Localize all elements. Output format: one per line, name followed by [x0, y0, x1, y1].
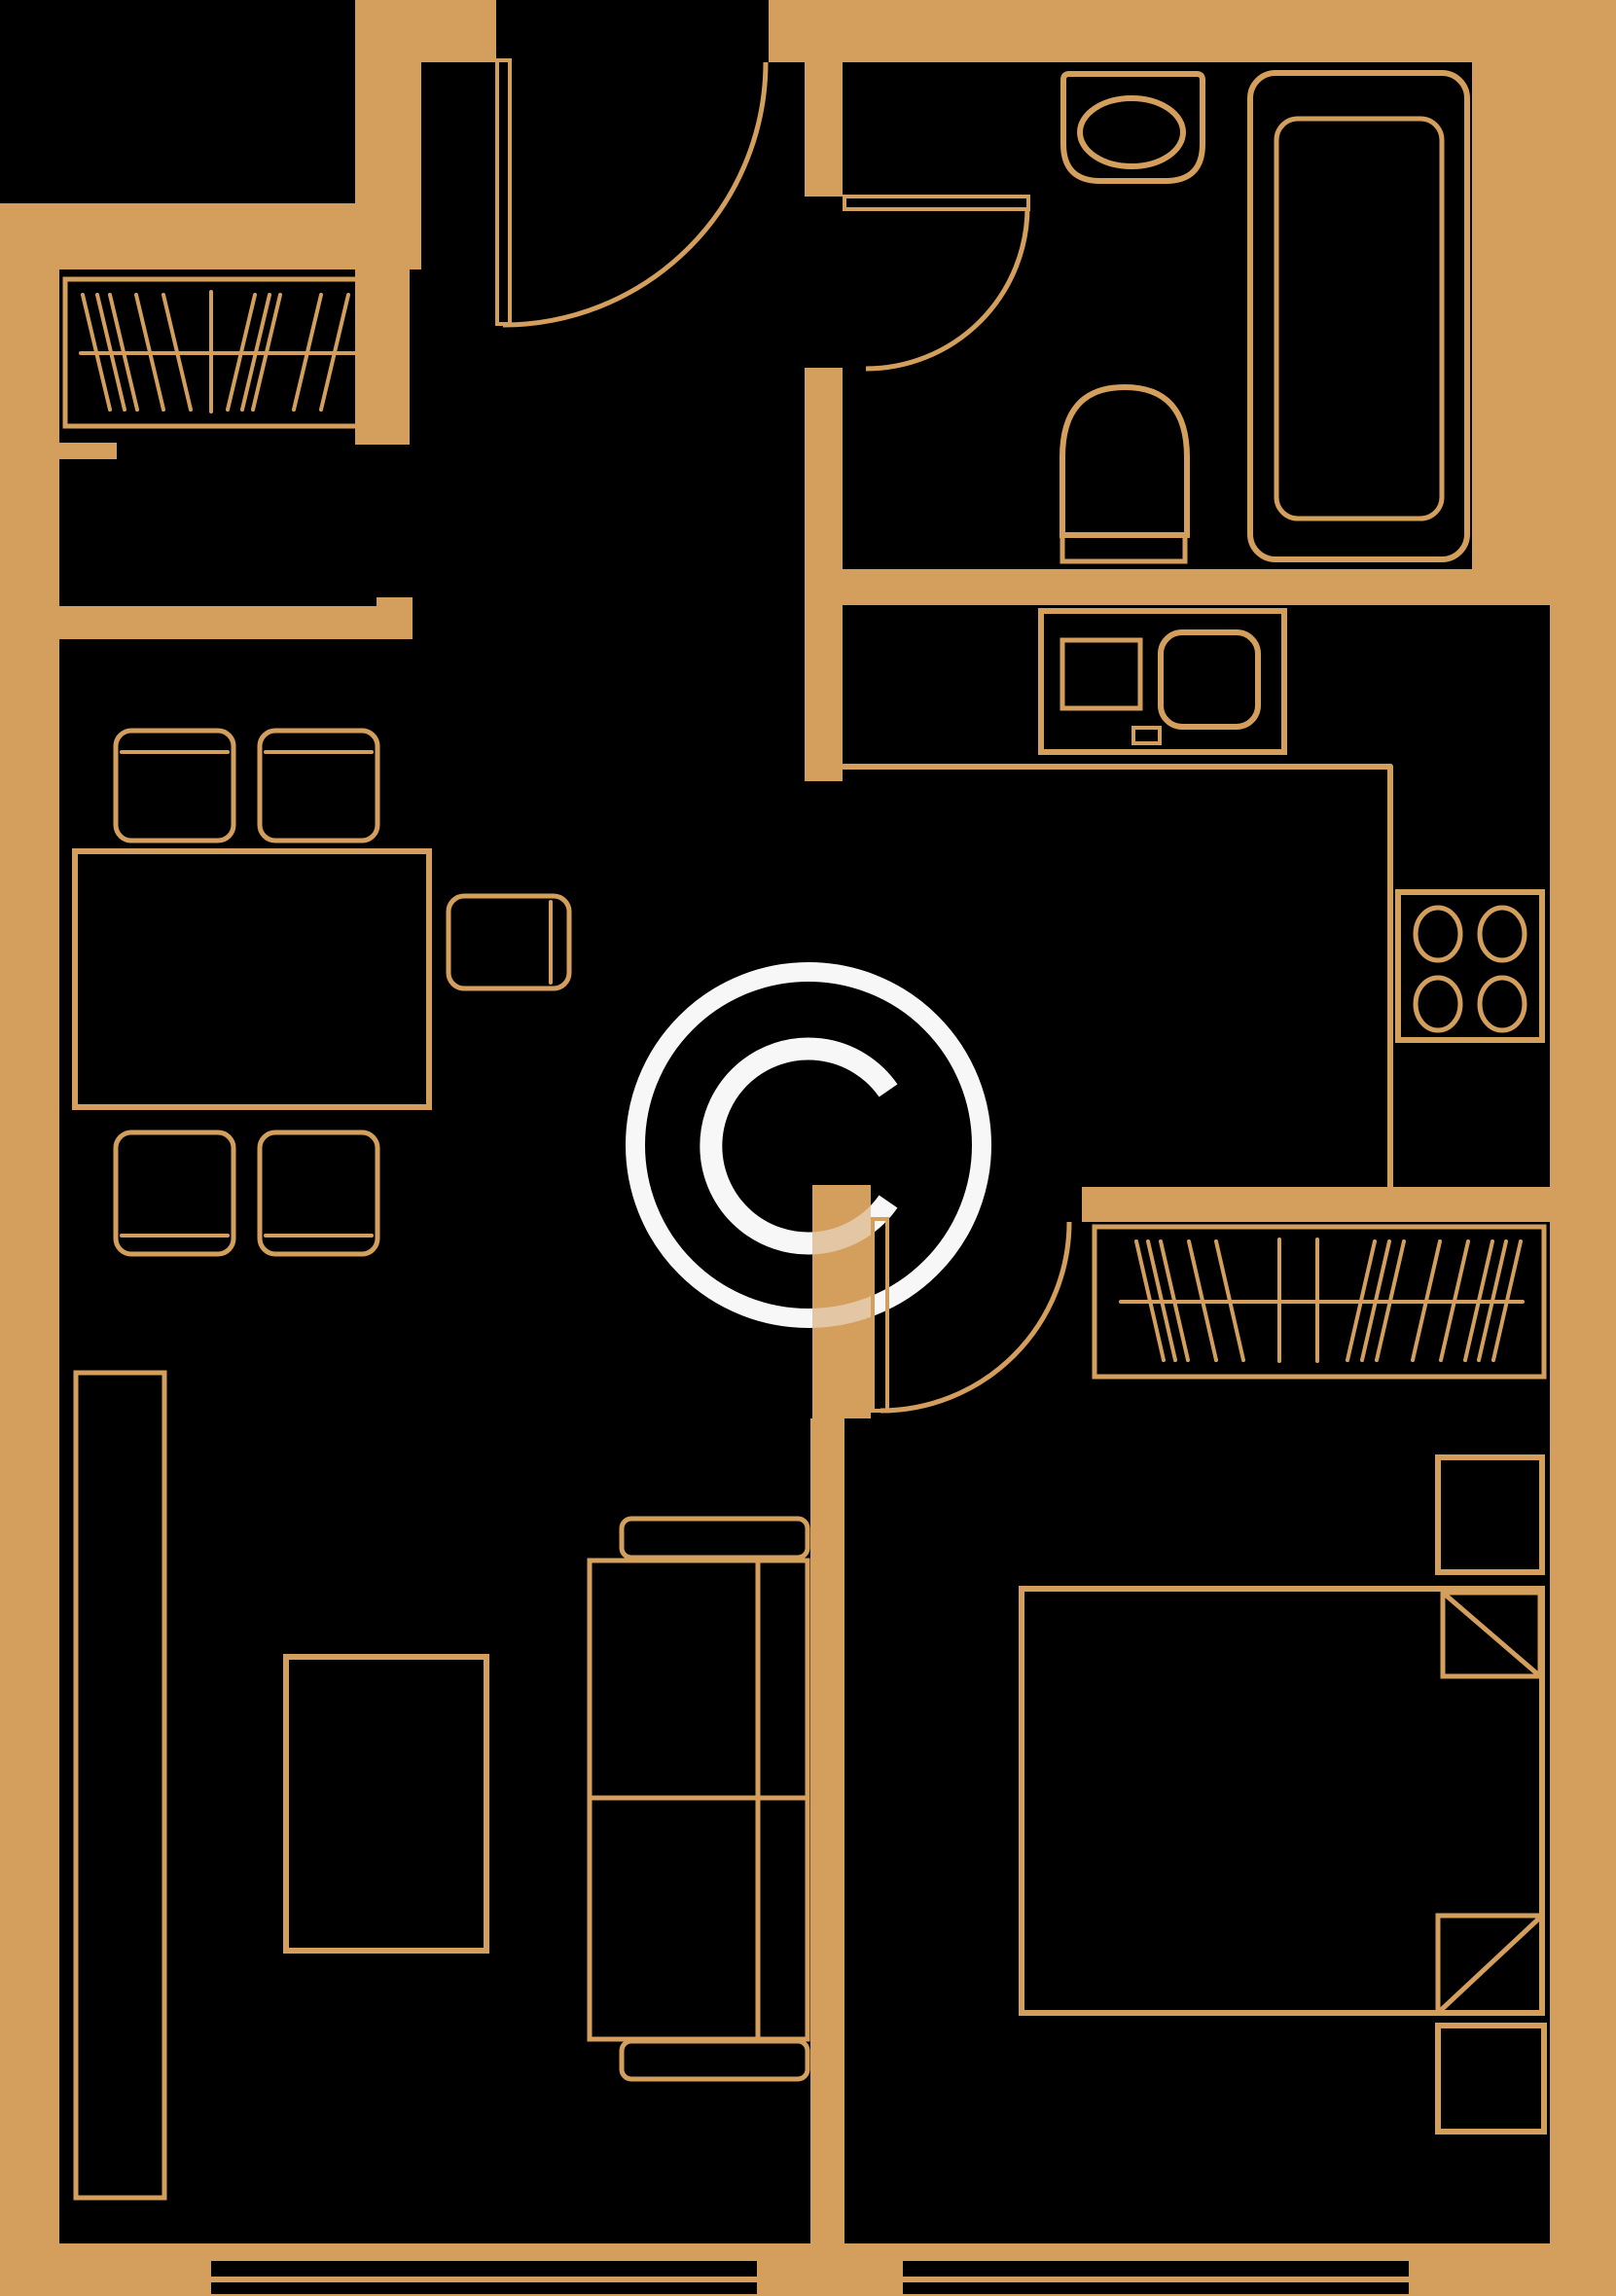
window-bedroom-pane-1	[903, 2261, 1409, 2277]
wall-entry-living-divider	[355, 269, 410, 445]
bathroom-door-arc	[866, 207, 1027, 369]
wall-top-band-left	[355, 0, 496, 62]
nightstand	[1438, 1457, 1542, 1572]
stove-burner-4	[1480, 978, 1525, 1030]
dining-table	[75, 851, 429, 1107]
window-living-pane-1	[211, 2261, 757, 2277]
kitchen-counter-square	[1062, 640, 1140, 708]
wall-left	[0, 203, 59, 2296]
wall-bedroom-west	[810, 1418, 844, 2261]
toilet-bowl	[1062, 387, 1187, 535]
window-bedroom-pane-2	[903, 2282, 1409, 2294]
bathtub-outer	[1250, 73, 1467, 559]
coffee-table	[286, 1657, 486, 1951]
kitchen-faucet	[1133, 728, 1160, 743]
entry-door-arc	[503, 62, 766, 325]
wall-bathroom-left-upper	[805, 62, 843, 197]
window-living-pane-2	[211, 2282, 757, 2294]
wall-entry-hall-band	[0, 203, 421, 269]
sofa-armrest	[622, 1519, 808, 1558]
stove-burner-3	[1416, 978, 1460, 1030]
stove-burner-2	[1480, 908, 1525, 960]
wall-dining-band	[59, 606, 413, 639]
tv-cabinet	[76, 1373, 164, 2198]
wall-right-main	[1550, 605, 1616, 2296]
nightstand	[1438, 2026, 1544, 2132]
toilet-tank	[1062, 535, 1185, 561]
bed-pillow-fold	[1443, 1593, 1540, 1676]
bedroom-door-arc	[880, 1222, 1069, 1411]
wall-top-band-right	[769, 0, 1616, 62]
bathroom-sink-basin	[1080, 98, 1183, 166]
sofa-armrest	[622, 2041, 808, 2079]
bed-pillow-fold	[1438, 1916, 1542, 2013]
bathtub-inner	[1276, 119, 1442, 519]
wall-bedroom-top-band	[1082, 1187, 1550, 1222]
stove-burner-1	[1416, 908, 1460, 960]
wall-dining-band-notch	[377, 597, 413, 606]
entry-door-leaf	[497, 60, 510, 324]
copyright-wall-overlay	[812, 1185, 871, 1418]
dining-chair	[116, 731, 233, 841]
copyright-ring-icon	[635, 972, 982, 1318]
kitchen-sink-basin	[1161, 632, 1258, 727]
bed	[1022, 1589, 1542, 2013]
wall-right-bathroom	[1472, 62, 1616, 605]
wall-left-stub	[59, 443, 117, 459]
floor-plan-canvas	[0, 0, 1616, 2296]
dining-chair	[260, 731, 377, 841]
floor-plan-page	[0, 0, 1616, 2296]
bathroom-door-leaf	[844, 197, 1028, 209]
